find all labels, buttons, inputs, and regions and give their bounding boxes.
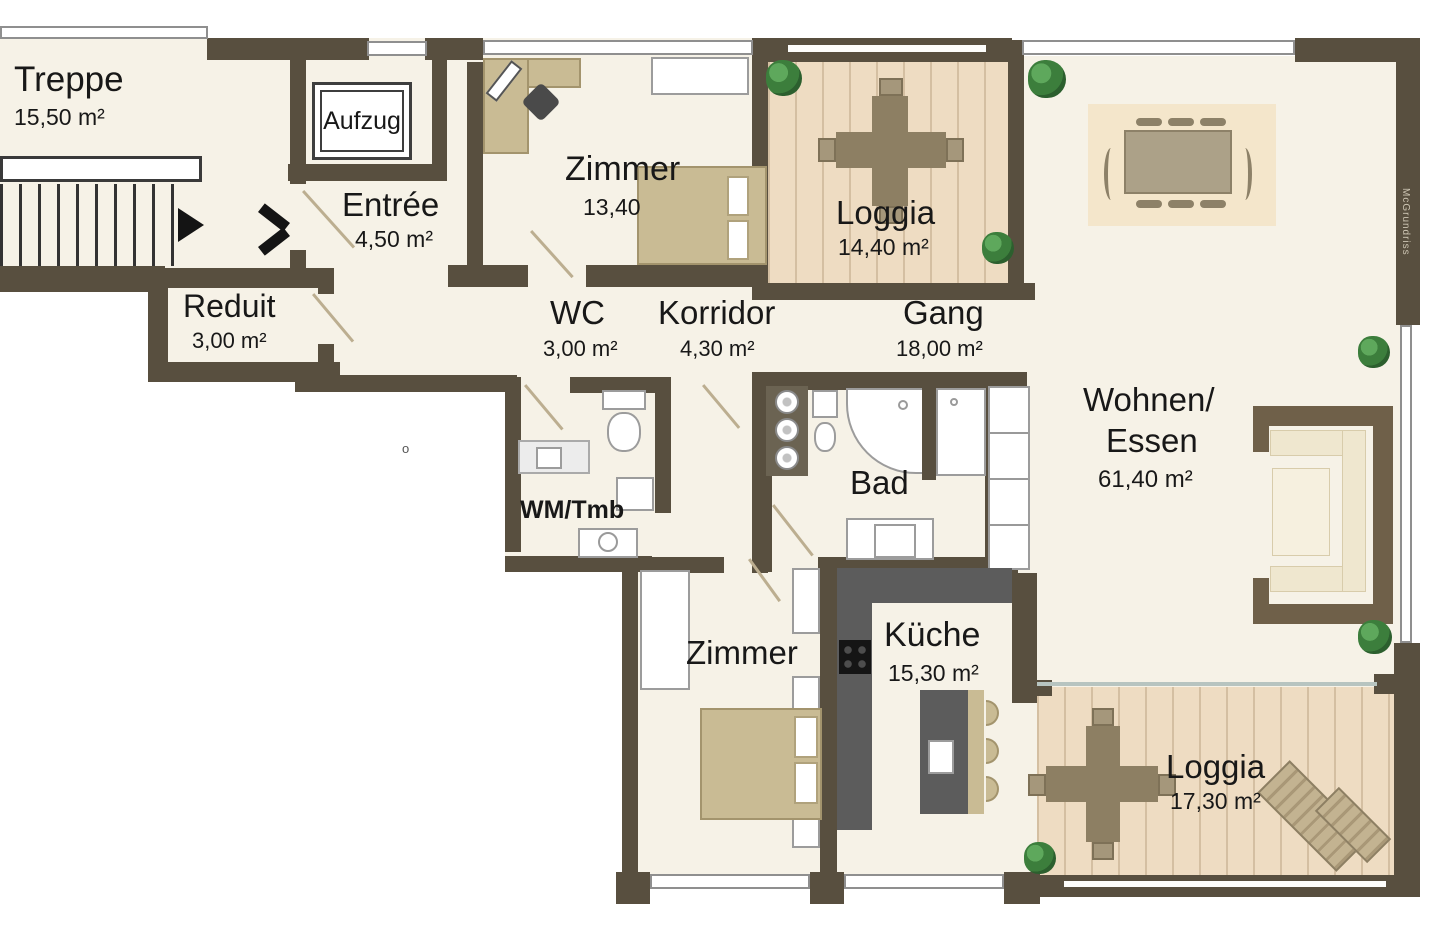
toilet: [607, 412, 641, 452]
wall: [820, 560, 837, 877]
chair: [879, 78, 903, 96]
chair: [1168, 118, 1194, 126]
pillow: [727, 220, 749, 260]
sofa: [1373, 406, 1393, 624]
wall: [288, 164, 447, 181]
toilet: [812, 390, 838, 418]
window: [367, 41, 427, 56]
wall: [425, 38, 483, 60]
room-label-gang: Gang: [903, 296, 984, 329]
wall: [622, 565, 638, 875]
washer-dryer-stack: [775, 446, 799, 470]
bathtub-corner: [936, 388, 986, 476]
loggia-table: [1046, 766, 1158, 802]
chair: [1200, 118, 1226, 126]
chair: [1238, 148, 1252, 200]
sink: [874, 524, 916, 558]
room-area-loggia-bottom: 17,30 m²: [1170, 790, 1261, 813]
wall: [922, 388, 936, 480]
chair: [1092, 842, 1114, 860]
chair: [1168, 200, 1194, 208]
sofa-cushion: [1342, 430, 1366, 592]
window: [1022, 40, 1295, 55]
pillow: [794, 762, 818, 804]
loggia-table: [836, 132, 946, 168]
sink: [536, 447, 562, 469]
loggia-glass-line: [1037, 682, 1377, 686]
window: [788, 45, 986, 52]
window: [483, 40, 753, 55]
wall: [295, 375, 517, 392]
room-area-loggia-top: 14,40 m²: [838, 236, 929, 259]
hallway-closet: [988, 386, 1030, 570]
washer-dryer-stack: [775, 390, 799, 414]
room-label-bad: Bad: [850, 466, 909, 499]
bar-counter: [968, 690, 984, 814]
room-label-entree: Entrée: [342, 188, 439, 221]
plant-icon: [1358, 336, 1390, 368]
staircase-landing: [0, 156, 202, 182]
window: [0, 26, 208, 39]
stray-mark: o: [402, 442, 409, 455]
wall: [616, 872, 650, 904]
room-label-wohnen: Wohnen/: [1083, 383, 1214, 416]
room-label-wc: WC: [550, 296, 605, 329]
room-label-essen: Essen: [1106, 424, 1198, 457]
plant-icon: [982, 232, 1014, 264]
room-label-treppe: Treppe: [14, 62, 124, 97]
kitchen-counter: [837, 568, 872, 830]
chair: [946, 138, 964, 162]
room-area-kueche: 15,30 m²: [888, 662, 979, 685]
wall: [586, 265, 766, 287]
window: [1400, 325, 1412, 643]
floor-plan: Aufzug: [0, 0, 1440, 944]
cooktop: [839, 640, 871, 674]
chair: [1092, 708, 1114, 726]
room-label-aufzug: Aufzug: [323, 107, 401, 136]
room-area-entree: 4,50 m²: [355, 228, 433, 251]
window: [1064, 881, 1386, 887]
wall: [432, 60, 447, 180]
chair: [818, 138, 836, 162]
chair: [1136, 200, 1162, 208]
room-area-reduit: 3,00 m²: [192, 330, 267, 352]
room-label-zimmer-bottom: Zimmer: [686, 636, 798, 669]
plant-icon: [1358, 620, 1392, 654]
room-label-wm-tmb: WM/Tmb: [520, 498, 624, 523]
sofa: [1253, 406, 1393, 426]
toilet: [602, 390, 646, 410]
wall: [810, 872, 844, 904]
staircase-treads: [0, 184, 184, 266]
sofa: [1253, 406, 1269, 452]
wall: [0, 266, 165, 292]
stairs-direction-arrow-icon: [178, 208, 204, 242]
wall: [752, 283, 1035, 300]
toilet: [814, 422, 836, 452]
chair: [1136, 118, 1162, 126]
plant-icon: [766, 60, 802, 96]
plant-icon: [1028, 60, 1066, 98]
wardrobe: [792, 568, 820, 634]
sink: [928, 740, 954, 774]
chair: [1200, 200, 1226, 208]
room-area-gang: 18,00 m²: [896, 338, 983, 360]
window: [650, 874, 810, 889]
wall: [448, 265, 528, 287]
wall: [318, 268, 334, 294]
room-area-wohnen-essen: 61,40 m²: [1098, 468, 1193, 492]
wall: [1004, 872, 1040, 904]
sofa: [1253, 578, 1269, 624]
pillow: [727, 176, 749, 216]
room-label-reduit: Reduit: [183, 290, 276, 322]
washing-machine-drum: [598, 532, 618, 552]
washer-dryer-stack: [775, 418, 799, 442]
plant-icon: [1024, 842, 1056, 874]
chair: [1104, 148, 1118, 200]
faucet: [950, 398, 958, 406]
room-label-kueche: Küche: [884, 618, 980, 652]
wall: [207, 38, 369, 60]
window: [844, 874, 1004, 889]
room-label-loggia-bottom: Loggia: [1166, 750, 1265, 783]
room-area-treppe: 15,50 m²: [14, 106, 105, 129]
watermark: McGrundriss: [1400, 188, 1411, 333]
wall: [290, 38, 306, 184]
wall: [655, 377, 671, 513]
wall: [148, 268, 320, 288]
room-label-zimmer-top: Zimmer: [565, 152, 680, 186]
room-area-korridor: 4,30 m²: [680, 338, 755, 360]
wardrobe: [640, 570, 690, 690]
coffee-table: [1272, 468, 1330, 556]
chair: [1028, 774, 1046, 796]
pillow: [794, 716, 818, 758]
shower-drain: [898, 400, 908, 410]
wall: [467, 62, 483, 270]
room-area-zimmer-top: 13,40: [583, 196, 641, 219]
wall: [1374, 674, 1394, 694]
room-label-korridor: Korridor: [658, 296, 775, 329]
wall: [1394, 643, 1420, 897]
dining-table: [1124, 130, 1232, 194]
pillow: [651, 57, 749, 95]
room-area-wc: 3,00 m²: [543, 338, 618, 360]
room-label-loggia-top: Loggia: [836, 196, 935, 229]
elevator-car: Aufzug: [312, 82, 412, 160]
